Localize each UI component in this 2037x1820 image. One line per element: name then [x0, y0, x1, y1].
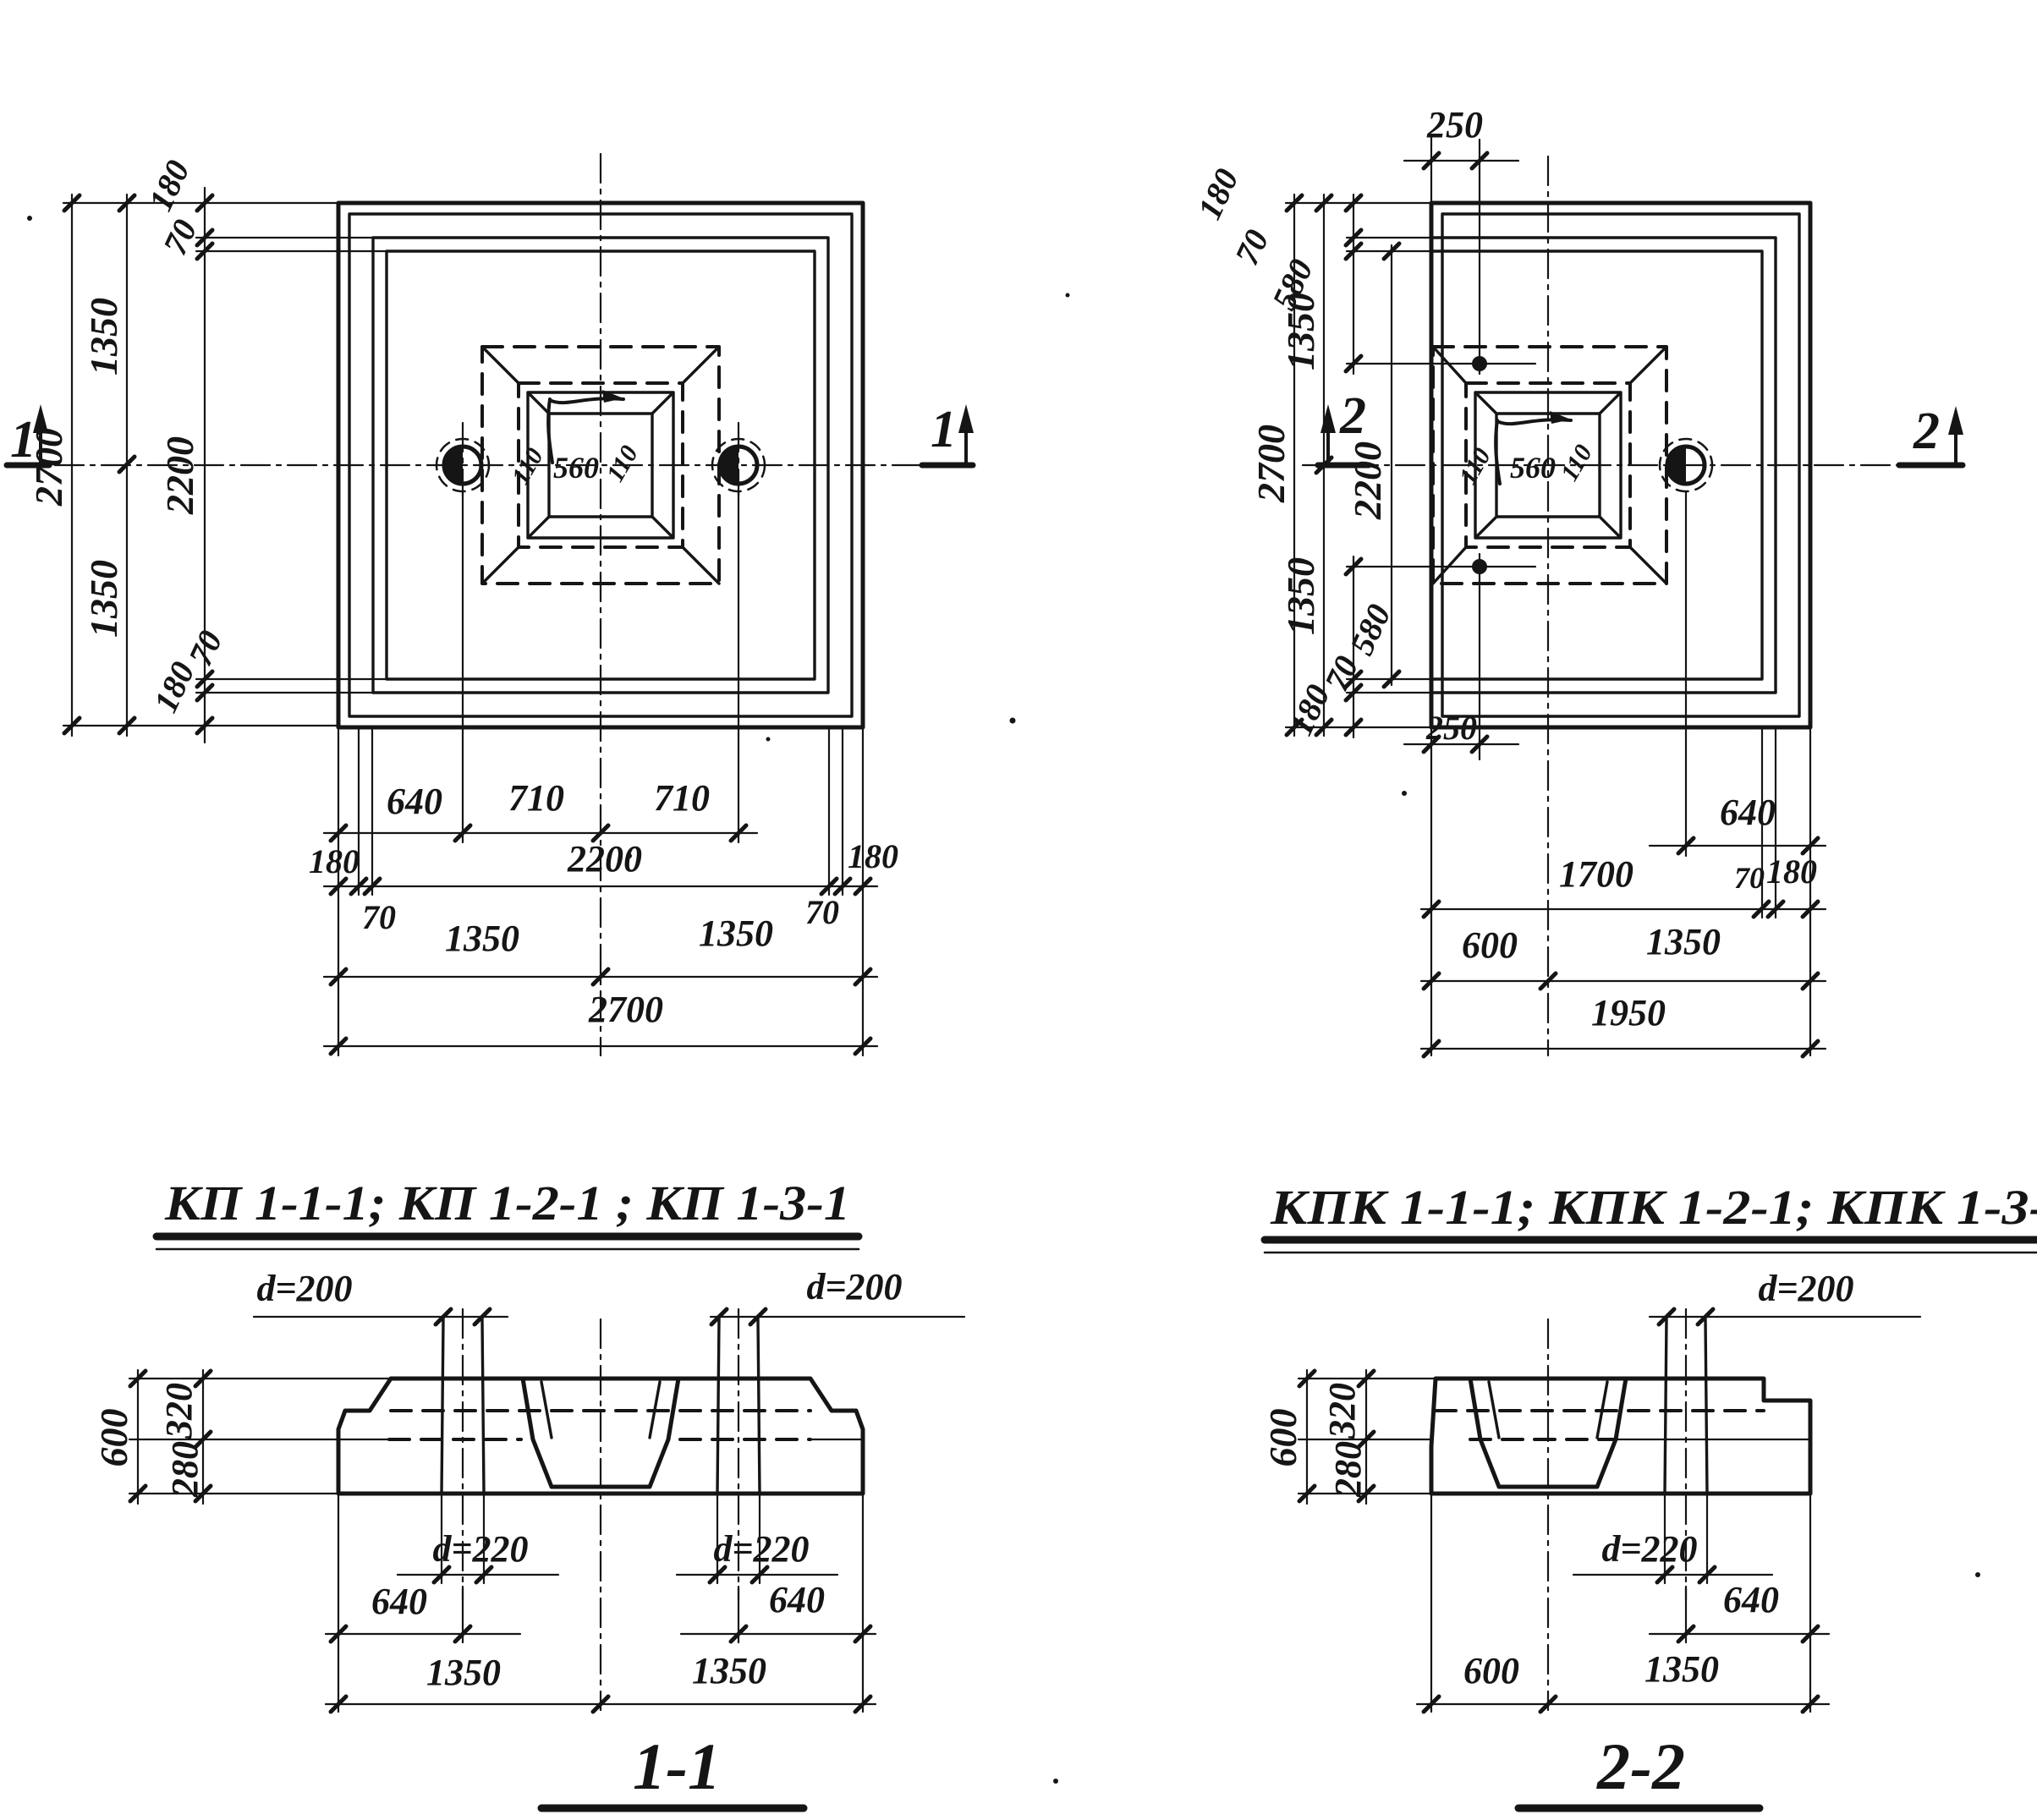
dim-label: 600 [1463, 1650, 1519, 1691]
section2-arrow-right [1948, 406, 1963, 435]
plan-kpk-dim-lines [1286, 135, 1826, 1055]
dim-label: 1350 [445, 918, 519, 959]
dim-label: 640 [1723, 1579, 1779, 1620]
socket-dim: 110 [507, 443, 549, 489]
dim-label: 70 [1227, 224, 1277, 271]
dim-label: 2200 [1346, 441, 1389, 520]
speck [1975, 1572, 1980, 1577]
hole-dia-label: d=200 [806, 1266, 902, 1307]
speck [27, 216, 32, 221]
dim-label: 640 [387, 781, 442, 822]
dim-label: 250 [1426, 104, 1483, 145]
dim-label: 1350 [1644, 1648, 1719, 1690]
dim-label: 180 [146, 656, 202, 718]
dim-label: 600 [92, 1409, 135, 1467]
dim-label: 1350 [692, 1650, 766, 1691]
section2-arrow-shafts [1328, 431, 1956, 463]
plan-kpk-title: КПК 1-1-1; КПК 1-2-1; КПК 1-3-1 [1270, 1180, 2037, 1235]
socket-dim: 560 [1510, 451, 1556, 485]
socket-dim: 110 [1556, 440, 1598, 485]
dim-label: 1350 [1279, 557, 1322, 635]
dim-label: 180 [141, 155, 197, 217]
hole-dia-label: d=220 [432, 1528, 528, 1570]
dim-label: 1350 [699, 913, 773, 954]
section22-hole-walls [1489, 1319, 1707, 1494]
section22-title: 2-2 [1596, 1730, 1685, 1803]
dim-label: 70 [362, 898, 396, 936]
dim-label: 70 [1734, 861, 1765, 895]
speck [766, 737, 771, 742]
dim-label: 600 [1261, 1409, 1304, 1467]
dim-label: 2200 [158, 436, 201, 515]
hole-dia-label: d=220 [1601, 1528, 1697, 1570]
section22-dim-ticks [1299, 1309, 1818, 1712]
dim-label: 1350 [1279, 293, 1322, 370]
speck [1010, 718, 1016, 724]
dim-label: 710 [654, 777, 710, 819]
dim-label: 1350 [426, 1652, 501, 1693]
blueprint-sheet: 1 1 180 70 1350 2700 2200 1350 70 180 11… [0, 0, 2037, 1820]
plan-kp-title: КП 1-1-1; КП 1-2-1 ; КП 1-3-1 [164, 1176, 850, 1231]
hole-dia-label: d=200 [1758, 1268, 1853, 1309]
dim-label: 180 [1190, 163, 1246, 225]
dim-label: 600 [1462, 924, 1518, 966]
dim-label: 180 [1766, 852, 1817, 891]
speck [1053, 1779, 1058, 1784]
dim-label: 70 [181, 625, 230, 672]
section1-arrow-right [958, 404, 974, 433]
dim-label: 2700 [1249, 425, 1293, 503]
speck [1066, 293, 1070, 298]
hole-dia-label: d=200 [256, 1268, 352, 1309]
dim-label: 1350 [1646, 921, 1721, 962]
dim-label: 320 [158, 1383, 200, 1439]
dim-label: 640 [1720, 792, 1776, 833]
section2-digit-left: 2 [1339, 387, 1366, 445]
dim-label: 280 [1327, 1441, 1369, 1498]
dim-label: 180 [309, 842, 360, 880]
dim-label: 580 [1342, 599, 1398, 661]
section1-digit-right: 1 [931, 401, 957, 458]
dim-label: 250 [1425, 709, 1477, 747]
dim-label: 2200 [567, 838, 642, 880]
speck [1402, 791, 1407, 796]
d im-label: 70 [805, 893, 839, 931]
dim-label: 1350 [82, 560, 125, 638]
dim-label: 710 [508, 777, 564, 819]
section22-dim-lines [1299, 1317, 1920, 1712]
hole-dia-label: d=220 [713, 1528, 809, 1570]
dim-label: 2700 [588, 989, 663, 1030]
socket-dim: 110 [601, 441, 644, 486]
dim-label: 180 [848, 837, 898, 875]
socket-dim: 560 [553, 451, 599, 485]
dim-label: 640 [769, 1579, 825, 1620]
section11-dim-lines [129, 1317, 964, 1712]
dim-label: 70 [156, 214, 205, 260]
dim-label: 1950 [1591, 992, 1666, 1033]
dim-label: 280 [164, 1441, 206, 1498]
socket-dim: 110 [1454, 443, 1496, 489]
section11-title: 1-1 [633, 1730, 721, 1803]
section2-arrow-left [1320, 404, 1336, 433]
plan-kpk: 2 2 250 180 70 580 1350 2700 2200 1350 5… [1190, 104, 2037, 1253]
dim-label: 320 [1321, 1383, 1363, 1439]
section22-outline [1431, 1379, 1810, 1494]
foundation-drawing: 1 1 180 70 1350 2700 2200 1350 70 180 11… [0, 0, 2037, 1820]
speck [627, 853, 632, 858]
dim-label: 1700 [1559, 853, 1633, 895]
dim-label: 1350 [82, 298, 125, 376]
plan-kp: 1 1 180 70 1350 2700 2200 1350 70 180 11… [7, 154, 974, 1249]
section-2-2: d=200 600 320 280 d=220 640 600 1350 2-2 [1261, 1268, 1920, 1808]
dim-label: 2700 [27, 428, 70, 507]
section-1-1: d=200 d=200 600 320 280 d=220 d=220 640 … [92, 1266, 964, 1808]
dim-label: 640 [371, 1581, 427, 1622]
section2-digit-right: 2 [1913, 403, 1940, 460]
